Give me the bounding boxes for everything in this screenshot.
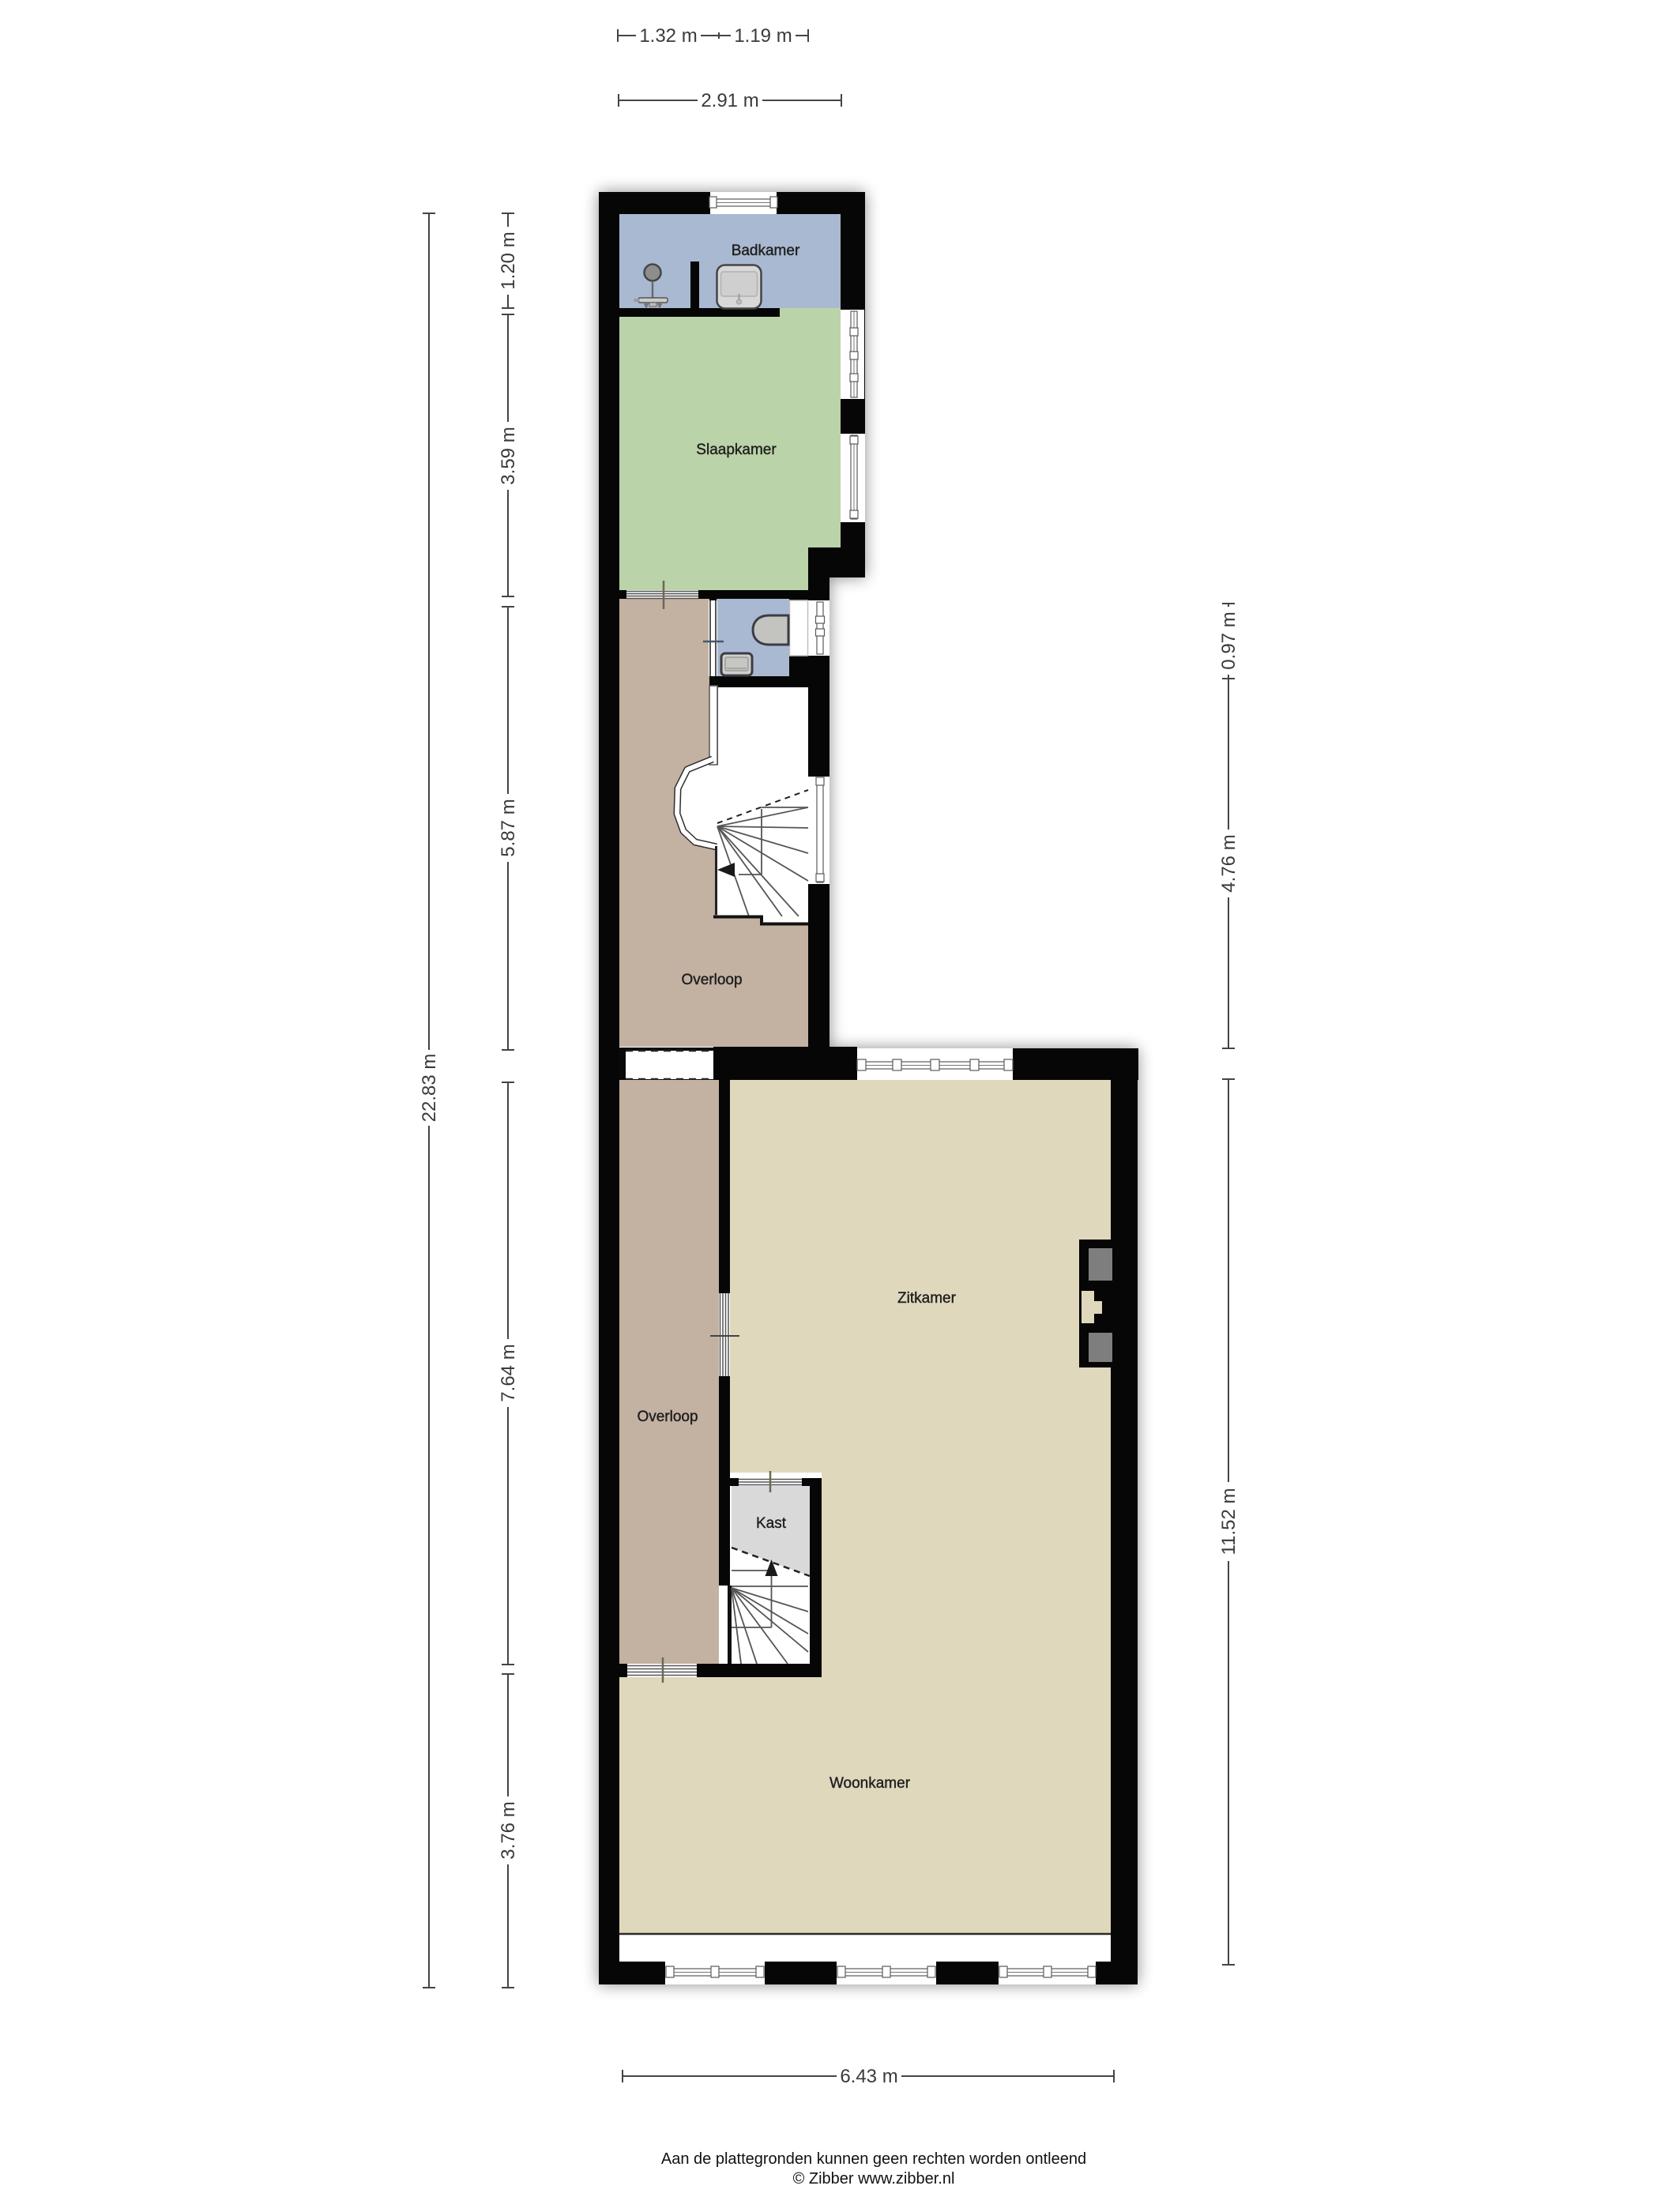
svg-text:Overloop: Overloop [681,972,742,988]
svg-text:7.64 m: 7.64 m [498,1344,519,1401]
svg-text:Kast: Kast [756,1515,787,1532]
svg-text:1.19 m: 1.19 m [734,25,792,47]
svg-text:3.76 m: 3.76 m [498,1801,519,1859]
svg-text:1.32 m: 1.32 m [639,25,697,47]
svg-text:11.52 m: 11.52 m [1218,1488,1240,1556]
svg-text:Overloop: Overloop [637,1409,698,1425]
svg-text:Aan de plattegronden kunnen ge: Aan de plattegronden kunnen geen rechten… [661,2150,1086,2168]
svg-text:Woonkamer: Woonkamer [829,1775,911,1792]
svg-text:0.97 m: 0.97 m [1218,611,1240,669]
svg-text:5.87 m: 5.87 m [498,799,519,856]
svg-text:6.43 m: 6.43 m [840,2066,897,2087]
svg-text:22.83 m: 22.83 m [419,1054,440,1123]
svg-text:Slaapkamer: Slaapkamer [696,442,777,458]
svg-text:3.59 m: 3.59 m [498,427,519,484]
svg-text:Badkamer: Badkamer [732,243,800,259]
svg-text:1.20 m: 1.20 m [498,231,519,289]
svg-text:© Zibber www.zibber.nl: © Zibber www.zibber.nl [793,2170,955,2188]
svg-text:Zitkamer: Zitkamer [897,1290,957,1307]
svg-text:4.76 m: 4.76 m [1218,834,1240,892]
svg-text:2.91 m: 2.91 m [701,90,758,111]
